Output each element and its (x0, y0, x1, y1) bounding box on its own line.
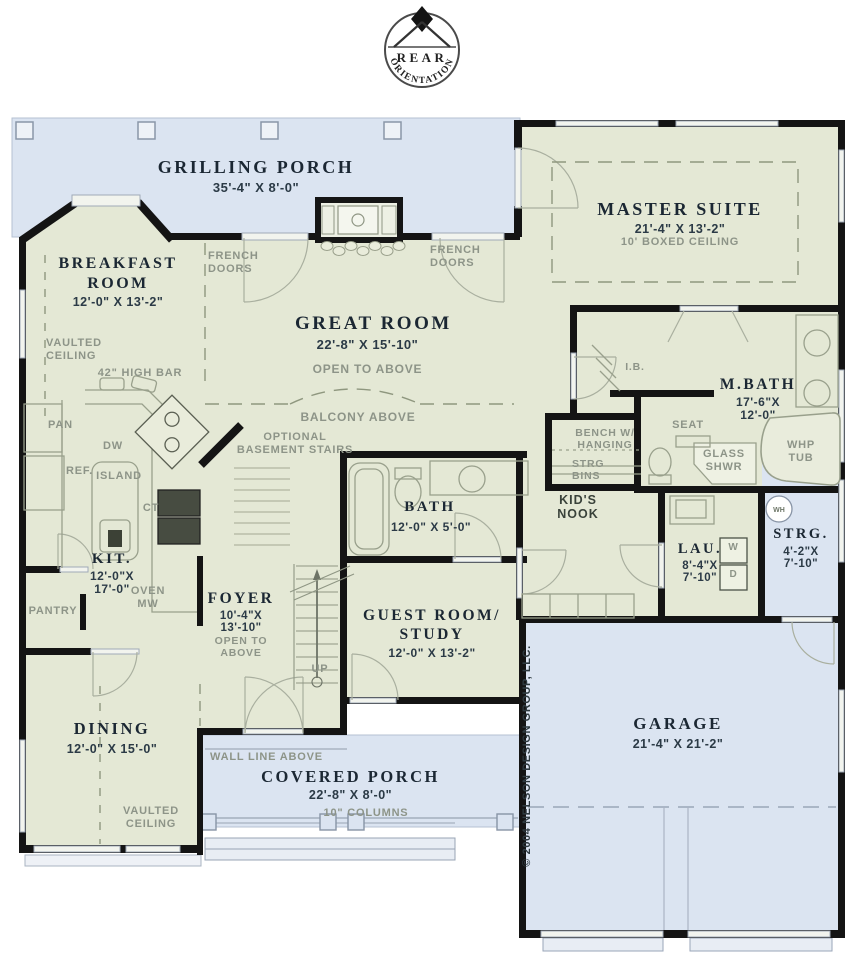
breakfast-name-2: ROOM (48, 276, 188, 293)
garage-dims: 21'-4" X 21'-2" (622, 738, 734, 751)
floor-plan: WH REAR ORIENTATION GRILLING PORCH 35'-4… (0, 0, 850, 955)
storage-bins-label-1: STRG (572, 459, 608, 470)
copyright-text: © 2004 NELSON DESIGN GROUP, LLC. (521, 634, 535, 878)
foyer-dims-2: 13'-10" (208, 622, 274, 634)
kids-nook-label-1: KID'S (550, 494, 606, 507)
glass-shower-label-2: SHWR (700, 462, 748, 474)
columns-note: 10" COLUMNS (320, 808, 412, 820)
oven-label: OVEN (128, 586, 168, 598)
pantry-label: PANTRY (24, 606, 82, 618)
master-bath-dims-1: 17'-6"X (714, 396, 802, 409)
great-room-dims: 22'-8" X 15'-10" (295, 338, 440, 352)
kids-nook-label-2: NOOK (548, 508, 608, 521)
dishwasher-label: DW (98, 441, 128, 453)
water-heater-label: WH (773, 507, 785, 514)
kitchen-dims-1: 12'-0"X (84, 570, 140, 583)
dining-vaulted-2: CEILING (118, 819, 184, 831)
breakfast-vaulted-2: CEILING (46, 351, 116, 363)
foyer-dims-1: 10'-4"X (208, 610, 274, 622)
whirlpool-tub-label-2: TUB (780, 453, 822, 465)
master-suite-dims: 21'-4" X 13'-2" (595, 223, 765, 236)
master-suite-ceiling-note: 10' BOXED CEILING (595, 237, 765, 249)
bench-hanging-label-2: HANGING (574, 440, 636, 451)
master-suite-name: MASTER SUITE (595, 200, 765, 219)
laundry-dims-2: 7'-10" (672, 572, 728, 584)
master-bath-dims-2: 12'-0" (714, 409, 802, 422)
island-label: ISLAND (94, 471, 144, 483)
grilling-porch-name: GRILLING PORCH (140, 158, 372, 177)
storage-dims-1: 4'-2"X (772, 546, 830, 558)
guest-room-name-2: STUDY (362, 627, 502, 643)
wall-line-above-note: WALL LINE ABOVE (210, 752, 350, 764)
storage-name: STRG. (770, 527, 832, 542)
storage-bins-label-2: BINS (572, 471, 608, 482)
foyer-name: FOYER (206, 591, 276, 607)
foyer-open-note-1: OPEN TO (208, 636, 274, 647)
kitchen-name: KIT. (86, 552, 138, 568)
french-doors-right-1: FRENCH (430, 245, 488, 257)
bath-name: BATH (394, 500, 466, 516)
laundry-dims-1: 8'-4"X (672, 560, 728, 572)
logo-rear-text: REAR (397, 50, 448, 65)
foyer-open-note-2: ABOVE (208, 648, 274, 659)
breakfast-dims: 12'-0" X 13'-2" (38, 296, 198, 309)
glass-shower-label-1: GLASS (700, 449, 748, 461)
covered-porch-dims: 22'-8" X 8'-0" (258, 789, 443, 802)
garage-name: GARAGE (628, 715, 728, 733)
great-room-name: GREAT ROOM (295, 314, 440, 334)
basement-stairs-note-2: BASEMENT STAIRS (228, 445, 362, 457)
dining-vaulted-1: VAULTED (118, 806, 184, 818)
whirlpool-tub-label-1: WHP (780, 440, 822, 452)
storage-dims-2: 7'-10" (772, 558, 830, 570)
high-bar-note: 42" HIGH BAR (90, 368, 190, 380)
grilling-porch-dims: 35'-4" X 8'-0" (140, 181, 372, 195)
seat-label: SEAT (668, 420, 708, 432)
dining-name: DINING (66, 720, 158, 737)
countertop-label: CT (140, 503, 162, 515)
balcony-above-note: BALCONY ABOVE (298, 411, 418, 424)
linen-closet-label: I.B. (620, 362, 650, 373)
rear-orientation-logo: REAR ORIENTATION (380, 6, 464, 92)
covered-porch-name: COVERED PORCH (258, 768, 443, 785)
master-bath-name: M.BATH (712, 377, 804, 393)
bath-dims: 12'-0" X 5'-0" (390, 521, 472, 534)
breakfast-name-1: BREAKFAST (48, 256, 188, 273)
stairs-up-label: UP (306, 664, 334, 676)
great-room-open-note: OPEN TO ABOVE (305, 363, 430, 376)
bench-hanging-label-1: BENCH W/ (574, 428, 636, 439)
french-doors-left-2: DOORS (208, 264, 266, 276)
washer-label: W (724, 543, 743, 554)
french-doors-right-2: DOORS (430, 258, 488, 270)
dryer-label: D (724, 570, 743, 581)
dining-dims: 12'-0" X 15'-0" (56, 743, 168, 756)
laundry-name: LAU. (672, 542, 728, 557)
french-doors-left-1: FRENCH (208, 251, 266, 263)
breakfast-vaulted-1: VAULTED (46, 338, 116, 350)
guest-room-dims: 12'-0" X 13'-2" (370, 647, 494, 660)
pantry-cabinet-label: PAN (48, 420, 84, 432)
basement-stairs-note-1: OPTIONAL (252, 432, 338, 444)
guest-room-name-1: GUEST ROOM/ (362, 608, 502, 624)
microwave-label: MW (128, 599, 168, 611)
